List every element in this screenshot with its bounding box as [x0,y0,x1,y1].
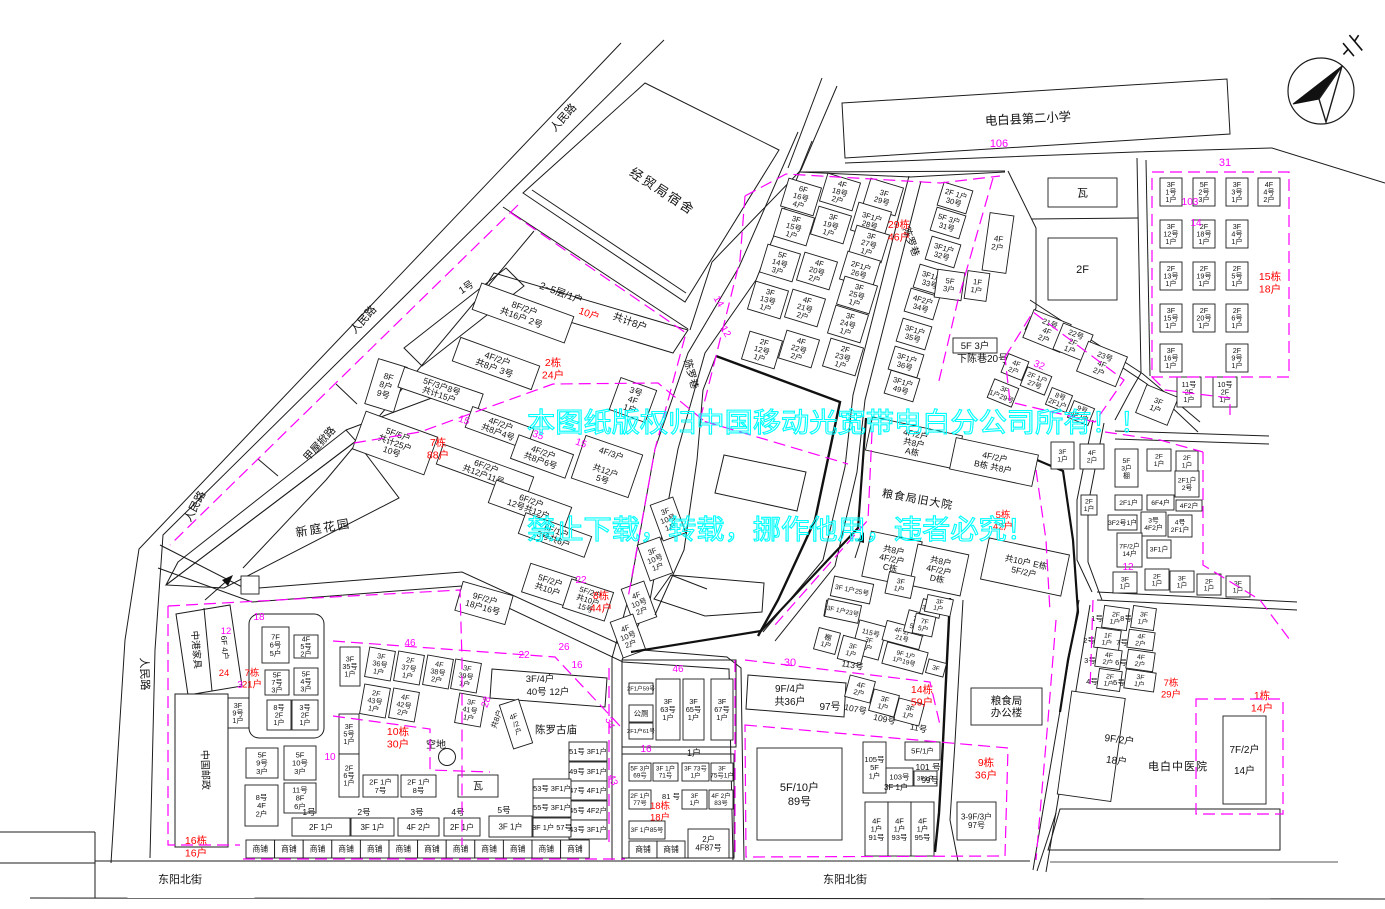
svg-text:办公楼: 办公楼 [991,706,1023,719]
svg-text:31: 31 [1219,157,1231,169]
svg-text:1户: 1户 [691,771,701,780]
svg-text:3F1户: 3F1户 [1150,544,1169,553]
svg-text:51号 3F1户: 51号 3F1户 [569,747,607,756]
svg-text:瓦: 瓦 [473,782,483,793]
svg-text:10栋: 10栋 [387,725,410,738]
svg-text:商铺: 商铺 [338,844,354,854]
svg-text:2F: 2F [1085,499,1093,506]
svg-text:2F 1户: 2F 1户 [309,822,333,832]
svg-text:1户: 1户 [970,284,983,296]
svg-text:3号: 3号 [1148,517,1159,525]
svg-text:4F2户: 4F2户 [1180,501,1199,510]
svg-text:24: 24 [219,668,230,679]
svg-text:3F 1户 57号: 3F 1户 57号 [532,823,572,832]
svg-text:7栋: 7栋 [245,667,260,679]
svg-text:1户: 1户 [1198,321,1209,330]
svg-text:18: 18 [253,612,265,623]
svg-text:97号: 97号 [968,821,985,830]
svg-text:3-9F/3户: 3-9F/3户 [961,812,992,822]
svg-text:1户: 1户 [343,779,354,788]
svg-text:59户: 59户 [911,696,933,709]
svg-text:5F/10户: 5F/10户 [780,780,819,794]
svg-text:1户: 1户 [344,670,355,679]
svg-text:3F: 3F [1178,575,1186,582]
svg-text:6F 4户: 6F 4户 [219,635,231,660]
svg-text:2F: 2F [1076,264,1089,276]
svg-text:1户: 1户 [1177,581,1188,590]
svg-text:2F: 2F [1155,454,1163,461]
svg-text:14户: 14户 [1251,702,1273,715]
svg-text:1户: 1户 [690,798,700,807]
svg-text:3F 1户: 3F 1户 [360,822,384,832]
svg-text:2F1户: 2F1户 [1171,525,1190,534]
svg-text:7号: 7号 [375,786,387,795]
svg-text:3号: 3号 [1084,656,1096,665]
svg-text:2户: 2户 [256,808,268,818]
svg-text:3户: 3户 [942,283,955,295]
svg-text:电白中医院: 电白中医院 [1148,759,1208,773]
svg-text:1户: 1户 [1084,504,1095,513]
svg-text:2户: 2户 [702,834,714,844]
svg-text:12: 12 [1122,562,1134,573]
svg-text:商铺: 商铺 [567,844,583,854]
svg-text:9F/4户: 9F/4户 [775,682,805,695]
svg-text:商铺: 商铺 [424,844,440,854]
svg-text:2户: 2户 [430,674,443,685]
svg-text:8栋: 8栋 [593,589,610,602]
svg-text:12: 12 [221,626,232,637]
svg-text:99号: 99号 [922,776,939,785]
svg-text:22: 22 [575,575,587,586]
svg-text:2F1户: 2F1户 [1119,498,1138,507]
svg-text:商铺: 商铺 [310,844,326,854]
svg-text:2F 1户: 2F 1户 [630,791,649,800]
svg-text:2号: 2号 [357,807,370,817]
svg-text:91号: 91号 [868,833,884,842]
svg-text:103: 103 [1182,197,1199,208]
svg-text:1户: 1户 [273,718,284,727]
svg-text:1户: 1户 [1120,582,1131,591]
svg-text:3: 3 [237,680,243,691]
svg-text:3F 1户: 3F 1户 [656,764,675,773]
svg-text:77号: 77号 [633,799,647,807]
svg-text:3户: 3户 [300,684,311,693]
svg-text:106: 106 [990,138,1008,150]
svg-text:5F/1户: 5F/1户 [911,746,934,756]
svg-text:16户: 16户 [185,847,207,860]
svg-text:2F1户: 2F1户 [1178,476,1197,485]
svg-text:3F: 3F [718,766,726,773]
svg-text:5F 3户: 5F 3户 [630,764,649,773]
svg-text:1户: 1户 [716,713,728,722]
svg-text:75号1户: 75号1户 [710,771,733,780]
svg-text:8号: 8号 [413,786,425,795]
svg-text:3户: 3户 [1198,195,1209,204]
svg-text:4号: 4号 [1175,519,1186,527]
svg-text:3F 73号: 3F 73号 [684,765,707,773]
svg-text:1户: 1户 [462,712,475,723]
svg-text:14户: 14户 [1122,549,1136,558]
svg-text:24户: 24户 [542,369,564,382]
svg-text:9栋: 9栋 [978,756,995,769]
svg-text:商铺: 商铺 [635,844,651,854]
svg-text:6号: 6号 [1115,658,1127,667]
svg-text:2户: 2户 [396,707,409,718]
svg-text:3F: 3F [691,793,699,800]
svg-text:商铺: 商铺 [396,844,412,854]
svg-text:7栋: 7栋 [1164,677,1179,689]
svg-text:26: 26 [558,642,570,653]
svg-text:97号: 97号 [819,701,840,713]
svg-text:45号 4F2户: 45号 4F2户 [569,806,607,815]
svg-text:1户: 1户 [1231,195,1242,204]
svg-text:4F 2户: 4F 2户 [406,822,430,832]
svg-text:22: 22 [518,650,530,661]
svg-text:3户: 3户 [294,766,306,776]
svg-text:7F/2户: 7F/2户 [1119,542,1139,551]
svg-text:43号 3F1户: 43号 3F1户 [569,825,607,834]
svg-text:1户: 1户 [1231,279,1242,288]
svg-text:4号: 4号 [1086,677,1098,686]
svg-text:4F2户: 4F2户 [1144,523,1163,532]
svg-text:商铺: 商铺 [481,844,497,854]
svg-text:2户: 2户 [991,241,1005,253]
svg-text:15栋: 15栋 [1259,270,1282,283]
svg-text:5户: 5户 [270,648,282,658]
svg-text:3F 1户: 3F 1户 [498,821,522,831]
svg-text:3F 1户: 3F 1户 [884,782,908,792]
svg-text:陈罗古庙: 陈罗古庙 [535,723,577,736]
svg-text:本图纸版权归中国移动光宽带电白分公司所有！！: 本图纸版权归中国移动光宽带电白分公司所有！！ [527,408,1148,438]
svg-text:1户: 1户 [232,716,243,725]
svg-text:2户: 2户 [1087,456,1098,465]
svg-text:1户: 1户 [1198,279,1209,288]
svg-text:5号: 5号 [497,805,510,815]
svg-text:44户: 44户 [590,602,612,615]
svg-text:1栋: 1栋 [1254,689,1271,702]
svg-text:46户: 46户 [888,231,910,244]
svg-text:1户: 1户 [1165,321,1176,330]
svg-text:商铺: 商铺 [281,844,297,854]
svg-text:1户: 1户 [1165,237,1176,246]
svg-text:3户: 3户 [271,685,282,694]
svg-text:2F1户61号: 2F1户61号 [627,727,655,735]
svg-text:1户: 1户 [688,713,700,722]
svg-text:2栋: 2栋 [545,356,562,369]
svg-text:2F: 2F [1183,455,1191,462]
svg-text:7号: 7号 [1116,638,1128,647]
svg-text:1户: 1户 [367,703,380,714]
svg-text:1户: 1户 [1204,584,1215,593]
svg-text:下陈巷20号: 下陈巷20号 [957,352,1008,365]
svg-text:2户: 2户 [1263,195,1274,204]
svg-text:商铺: 商铺 [510,844,526,854]
svg-text:1户: 1户 [401,670,414,681]
svg-text:103号: 103号 [889,773,910,782]
svg-text:5F 3户: 5F 3户 [961,340,990,352]
svg-text:商铺: 商铺 [253,844,269,854]
svg-text:东阳北街: 东阳北街 [158,872,202,886]
svg-text:1户: 1户 [687,747,701,758]
svg-text:3F: 3F [1121,576,1129,583]
svg-text:14: 14 [1190,218,1202,229]
svg-text:2F: 2F [1153,573,1161,580]
svg-text:3F2号1户: 3F2号1户 [1108,518,1137,527]
svg-text:40号 12户: 40号 12户 [527,686,570,698]
svg-text:4号: 4号 [451,807,464,817]
svg-text:4F87号: 4F87号 [695,844,721,853]
svg-text:36户: 36户 [975,769,997,782]
svg-text:46: 46 [672,664,684,675]
svg-text:1号: 1号 [302,807,315,817]
svg-text:商铺: 商铺 [367,844,383,854]
svg-text:1户: 1户 [1182,461,1193,470]
svg-text:商铺: 商铺 [453,844,469,854]
svg-text:1户: 1户 [1152,579,1163,588]
svg-text:29户: 29户 [1161,689,1181,701]
svg-text:公厕: 公厕 [634,709,649,718]
svg-text:69号: 69号 [633,772,647,780]
svg-text:粮食局: 粮食局 [991,694,1023,707]
svg-text:1户: 1户 [1057,455,1068,464]
svg-text:1户: 1户 [1231,237,1242,246]
svg-text:7栋: 7栋 [430,436,447,449]
svg-text:1户: 1户 [1198,237,1209,246]
svg-text:棚: 棚 [1123,471,1130,480]
svg-text:89号: 89号 [788,795,811,808]
svg-text:71号: 71号 [659,772,673,780]
svg-text:3户: 3户 [256,766,268,776]
svg-text:5号: 5号 [1113,678,1125,687]
svg-text:81 号: 81 号 [662,792,680,801]
svg-text:83号: 83号 [714,799,728,807]
svg-text:95号: 95号 [914,833,930,842]
svg-text:东阳北街: 东阳北街 [823,872,867,886]
svg-text:1户: 1户 [1165,361,1176,370]
svg-text:18户: 18户 [1259,283,1281,296]
svg-text:7F/2户: 7F/2户 [1229,743,1259,756]
svg-text:8号: 8号 [1120,614,1132,623]
svg-text:14户: 14户 [1234,764,1255,777]
svg-text:29栋: 29栋 [888,218,911,231]
svg-text:1户: 1户 [662,713,674,722]
svg-text:47号 4F1户: 47号 4F1户 [569,786,607,795]
svg-text:2号: 2号 [1182,484,1193,492]
svg-text:1户: 1户 [299,718,310,727]
svg-text:88户: 88户 [427,449,449,462]
svg-text:2F1户59号: 2F1户59号 [627,685,655,693]
svg-text:商铺: 商铺 [539,844,555,854]
svg-text:4F 2户: 4F 2户 [711,791,730,800]
svg-text:53号 3F1户: 53号 3F1户 [533,784,571,793]
svg-text:2F: 2F [1205,578,1213,585]
svg-text:商铺: 商铺 [663,844,679,854]
svg-text:1户: 1户 [1231,321,1242,330]
svg-text:4F: 4F [1088,450,1096,457]
svg-text:1户: 1户 [458,678,471,689]
svg-text:6F4户: 6F4户 [1151,498,1170,507]
svg-text:2户: 2户 [300,649,311,658]
svg-text:1户: 1户 [1183,395,1194,404]
svg-text:10: 10 [324,752,336,763]
svg-text:30户: 30户 [387,738,409,751]
svg-text:2号: 2号 [1083,636,1095,645]
svg-text:3户: 3户 [1121,463,1132,472]
svg-text:3F 1户85号: 3F 1户85号 [631,825,664,834]
svg-text:瓦: 瓦 [1077,187,1088,199]
svg-text:1户: 1户 [1231,361,1242,370]
svg-text:3F/4户: 3F/4户 [526,673,555,685]
svg-text:21户: 21户 [242,679,262,691]
svg-text:禁止下载，转载，挪作他用，违者必究！: 禁止下载，转载，挪作他用，违者必究！ [527,515,1035,545]
svg-text:共36户: 共36户 [774,695,805,708]
svg-text:101 号: 101 号 [915,762,940,772]
svg-text:1户: 1户 [1165,279,1176,288]
svg-text:1户: 1户 [372,666,385,677]
svg-text:55号 3F1户: 55号 3F1户 [533,803,571,812]
svg-text:人民路: 人民路 [137,657,151,690]
svg-text:3F: 3F [1059,449,1067,456]
svg-text:16: 16 [571,660,583,671]
svg-text:1户: 1户 [1154,459,1165,468]
svg-text:30: 30 [784,657,796,669]
svg-text:1户: 1户 [1165,195,1176,204]
svg-text:1户: 1户 [869,770,881,780]
svg-text:93号: 93号 [891,833,907,842]
svg-text:5F: 5F [1123,458,1131,465]
svg-text:3号: 3号 [410,807,423,817]
svg-text:49号 3F1户: 49号 3F1户 [569,767,607,776]
svg-text:1户: 1户 [343,737,354,746]
svg-text:18栋: 18栋 [650,800,671,812]
svg-text:16: 16 [640,744,652,755]
